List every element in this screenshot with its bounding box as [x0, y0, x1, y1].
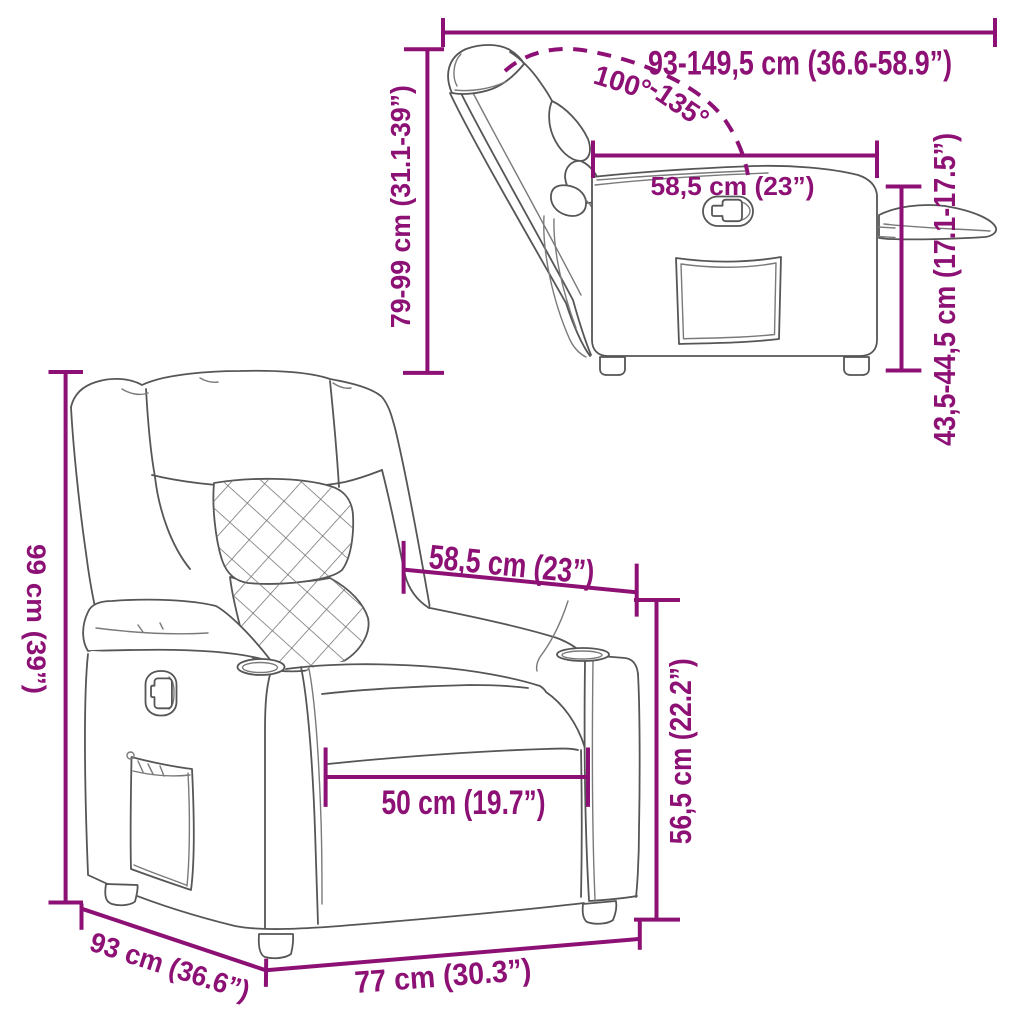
svg-text:99 cm (39”): 99 cm (39”): [21, 544, 51, 694]
svg-text:50 cm (19.7”): 50 cm (19.7”): [382, 784, 546, 822]
svg-text:56,5 cm (22.2”): 56,5 cm (22.2”): [663, 658, 698, 844]
svg-text:79-99 cm (31.1-39”): 79-99 cm (31.1-39”): [385, 85, 416, 328]
svg-text:93-149,5 cm (36.6-58.9”): 93-149,5 cm (36.6-58.9”): [648, 45, 952, 83]
svg-text:43,5-44,5 cm (17.1-17.5”): 43,5-44,5 cm (17.1-17.5”): [927, 133, 962, 446]
svg-text:58,5 cm (23”): 58,5 cm (23”): [651, 171, 815, 201]
